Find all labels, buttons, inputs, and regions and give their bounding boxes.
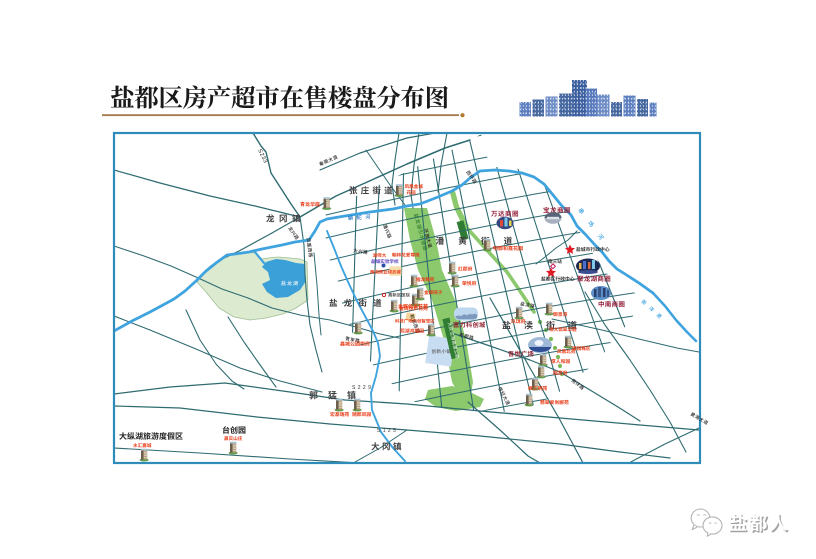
svg-text:S125: S125 bbox=[377, 428, 398, 434]
svg-text:S229: S229 bbox=[352, 385, 373, 391]
